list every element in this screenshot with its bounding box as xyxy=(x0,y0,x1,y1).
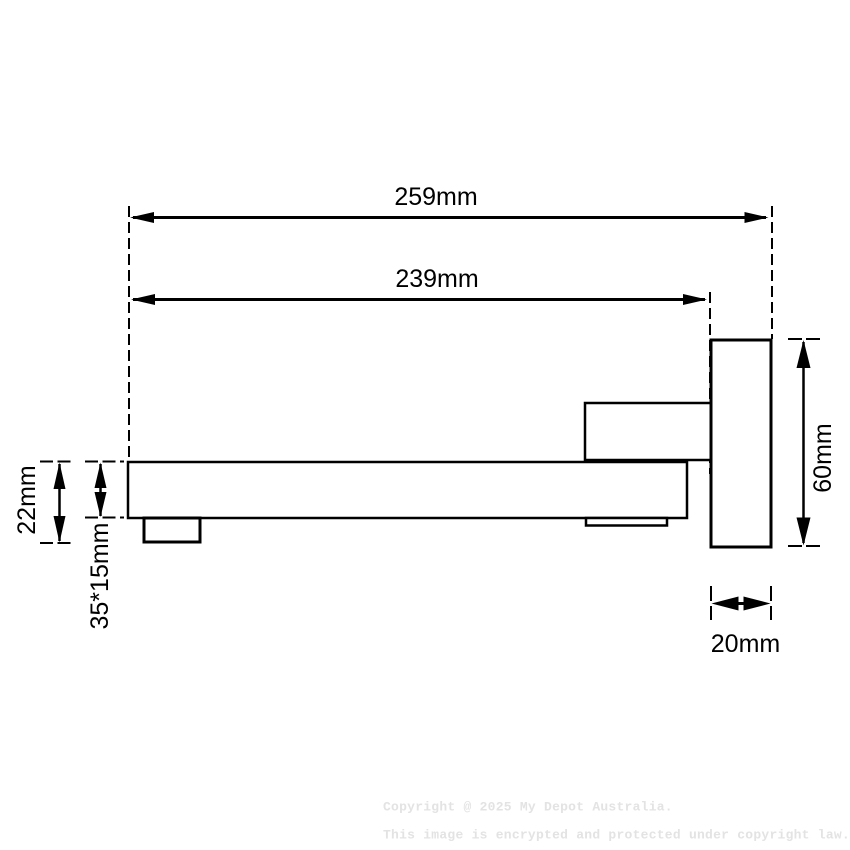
svg-text:This image is encrypted and pr: This image is encrypted and protected un… xyxy=(383,828,850,843)
svg-text:35*15mm: 35*15mm xyxy=(86,523,114,630)
svg-text:60mm: 60mm xyxy=(809,423,837,492)
svg-text:Copyright @ 2025 My Depot Aust: Copyright @ 2025 My Depot Australia. xyxy=(383,800,673,815)
svg-text:239mm: 239mm xyxy=(395,265,478,293)
svg-text:20mm: 20mm xyxy=(711,630,780,658)
svg-text:22mm: 22mm xyxy=(13,465,41,534)
svg-text:259mm: 259mm xyxy=(394,183,477,211)
